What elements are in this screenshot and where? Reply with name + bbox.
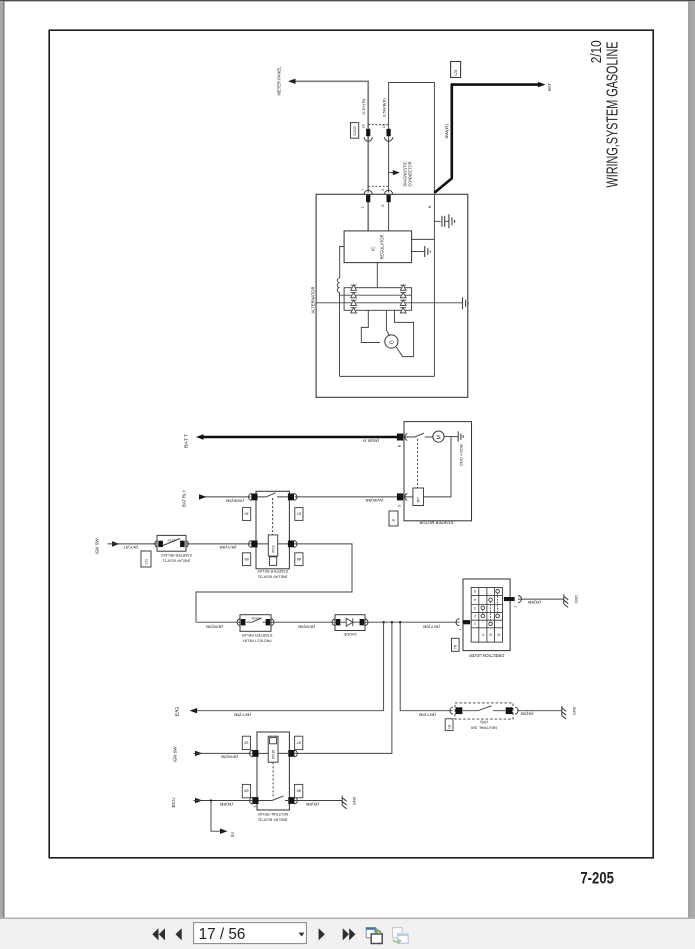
svg-text:(B)5B: (B)5B [520,712,534,716]
svg-text:M: M [436,435,442,439]
svg-text:86: 86 [297,789,301,794]
svg-text:RY15: RY15 [271,750,275,759]
svg-text:WIRING,SYSTEM GASOLINE: WIRING,SYSTEM GASOLINE [605,42,622,188]
svg-text:0.5Y(R): 0.5Y(R) [361,98,366,115]
svg-text:2/10: 2/10 [589,40,605,63]
svg-text:3: 3 [513,606,517,608]
svg-text:DIODE: DIODE [343,632,356,637]
svg-text:3: 3 [474,606,476,610]
svg-text:BAT: BAT [547,82,552,91]
svg-text:(B)5B: (B)5B [219,802,233,806]
svg-text:13: 13 [382,124,386,128]
svg-text:STARTER MOTOR: STARTER MOTOR [419,520,454,525]
svg-text:REGULATOR: REGULATOR [379,234,384,260]
svg-text:IGN SW: IGN SW [95,538,100,555]
svg-text:C02: C02 [352,125,357,135]
svg-text:2: 2 [474,614,476,618]
svg-text:(B/W)5B: (B/W)5B [205,625,223,629]
svg-text:GND: GND [574,595,578,604]
svg-text:(B)5B: (B)5B [305,802,319,806]
svg-text:(W/B)5B: (W/B)5B [225,499,244,503]
svg-text:1: 1 [361,189,365,191]
svg-text:4: 4 [474,598,476,602]
svg-text:BAT.RLY: BAT.RLY [182,490,187,507]
svg-text:IGN SW: IGN SW [173,746,178,763]
svg-text:ECU: ECU [171,798,176,808]
svg-text:STARTER RELAY: STARTER RELAY [257,569,288,574]
svg-text:STARTER RELAY2: STARTER RELAY2 [161,553,192,558]
svg-text:GND: GND [353,796,357,805]
svg-text:(B)5B: (B)5B [527,600,541,604]
svg-text:(W/B)5B: (W/B)5B [365,498,384,502]
svg-text:7-205: 7-205 [580,869,614,887]
svg-text:NEUTRAL RELAY: NEUTRAL RELAY [257,812,288,817]
svg-text:L: L [361,206,365,208]
svg-text:RY: RY [416,497,421,503]
svg-text:ALTERNATOR: ALTERNATOR [311,287,316,314]
svg-text:0.5W/B(R): 0.5W/B(R) [382,97,387,117]
svg-text:(B/W)5B: (B/W)5B [220,755,238,759]
svg-text:L8: L8 [447,725,451,729]
svg-text:N: N [489,633,492,637]
svg-text:(B/Y)ST: (B/Y)ST [122,545,138,549]
svg-text:2: 2 [381,189,385,191]
svg-text:RY3: RY3 [272,545,276,552]
svg-text:85: 85 [244,789,248,794]
svg-text:(RELAY BOX*3): (RELAY BOX*3) [258,575,288,580]
svg-text:1: 1 [474,622,476,626]
svg-text:7N: 7N [454,644,458,649]
svg-text:5: 5 [474,589,476,593]
svg-text:(B/Y)5B: (B/Y)5B [418,713,436,717]
svg-text:87: 87 [297,512,301,517]
svg-text:P: P [391,519,396,522]
svg-text:G: G [389,340,395,344]
svg-text:86: 86 [297,557,301,562]
svg-text:DIRECTION LEVER: DIRECTION LEVER [469,653,504,658]
svg-text:(B/Y)5B: (B/Y)5B [219,545,237,549]
svg-text:STARTER RELAY: STARTER RELAY [241,633,272,638]
svg-text:5V: 5V [230,832,235,837]
svg-text:L/1: L/1 [144,558,149,564]
svg-text:GND: GND [572,706,576,715]
svg-text:8W(R): 8W(R) [444,123,449,138]
svg-text:14: 14 [362,124,366,128]
svg-text:87: 87 [297,741,301,746]
svg-text:BAT.T: BAT.T [184,434,189,448]
svg-text:1: 1 [458,629,462,631]
svg-text:BODY GND: BODY GND [459,444,464,466]
svg-text:CONNECTOR: CONNECTOR [407,162,412,187]
svg-text:17 / 56: 17 / 56 [199,926,246,943]
svg-text:PROTECT RELAY: PROTECT RELAY [242,639,271,644]
svg-text:(B)8.0: (B)8.0 [363,439,379,443]
svg-text:2: 2 [253,806,257,808]
svg-text:R: R [497,633,500,637]
svg-text:L/4: L/4 [453,69,458,75]
svg-text:E/G: E/G [175,706,180,717]
svg-text:NEUTRAL SW: NEUTRAL SW [471,726,497,731]
svg-text:(B/W)5B: (B/W)5B [297,625,315,629]
svg-text:METER PANEL: METER PANEL [276,66,281,95]
svg-text:85: 85 [244,557,248,562]
svg-text:(RELAY BOX*1): (RELAY BOX*1) [162,559,190,564]
svg-text:IC: IC [370,246,375,251]
svg-text:(B/Y)5B: (B/Y)5B [422,625,440,629]
svg-text:(M3): (M3) [480,720,487,724]
svg-text:(RELAY BOX*3): (RELAY BOX*3) [258,818,288,823]
svg-text:(B/Y)5B: (B/Y)5B [233,713,251,717]
